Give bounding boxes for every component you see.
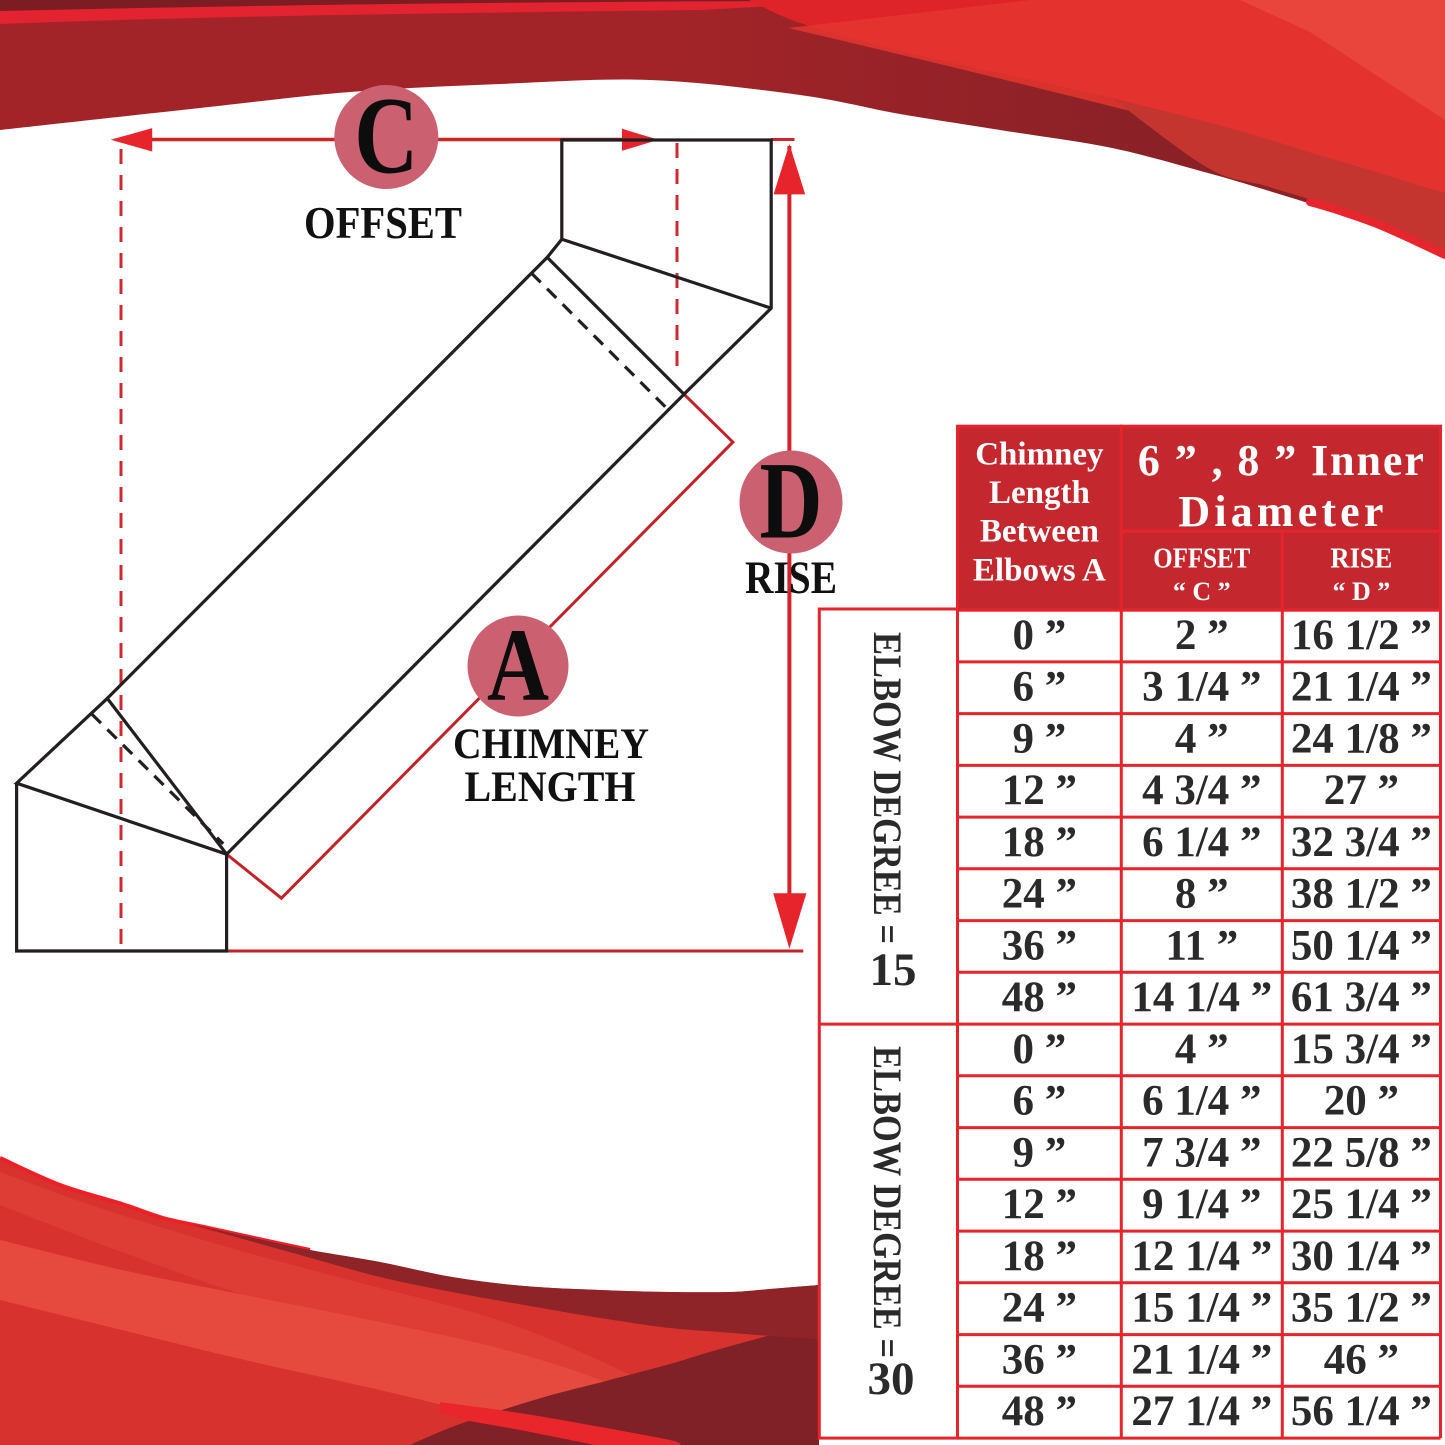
svg-text:20 ”: 20 ”	[1324, 1078, 1399, 1125]
svg-text:“ D ”: “ D ”	[1333, 577, 1391, 606]
svg-text:21 1/4 ”: 21 1/4 ”	[1291, 664, 1432, 711]
svg-text:ELBOW DEGREE =: ELBOW DEGREE =	[865, 1046, 910, 1358]
svg-text:LENGTH: LENGTH	[465, 764, 636, 811]
svg-text:56 1/4 ”: 56 1/4 ”	[1291, 1388, 1432, 1435]
svg-text:48 ”: 48 ”	[1002, 974, 1077, 1021]
svg-text:24 ”: 24 ”	[1002, 1285, 1077, 1332]
svg-text:“ C ”: “ C ”	[1173, 577, 1231, 606]
svg-text:27 ”: 27 ”	[1324, 767, 1399, 814]
svg-text:25 1/4 ”: 25 1/4 ”	[1291, 1181, 1432, 1228]
svg-text:4 3/4 ”: 4 3/4 ”	[1142, 767, 1261, 814]
svg-text:OFFSET: OFFSET	[304, 197, 462, 248]
svg-text:RISE: RISE	[745, 552, 837, 604]
svg-text:RISE: RISE	[1330, 542, 1392, 574]
svg-text:A: A	[487, 608, 549, 723]
svg-text:7 3/4 ”: 7 3/4 ”	[1142, 1130, 1261, 1177]
svg-text:Length: Length	[989, 475, 1090, 511]
svg-text:30: 30	[868, 1353, 915, 1405]
svg-text:12 ”: 12 ”	[1002, 1181, 1077, 1228]
svg-text:14 1/4 ”: 14 1/4 ”	[1131, 974, 1272, 1021]
svg-text:CHIMNEY: CHIMNEY	[453, 721, 649, 768]
svg-text:18 ”: 18 ”	[1002, 819, 1077, 866]
svg-text:15 1/4 ”: 15 1/4 ”	[1131, 1285, 1272, 1332]
svg-text:8 ”: 8 ”	[1175, 871, 1229, 918]
svg-text:15 3/4 ”: 15 3/4 ”	[1291, 1026, 1432, 1073]
svg-text:48 ”: 48 ”	[1002, 1388, 1077, 1435]
svg-text:ELBOW DEGREE =: ELBOW DEGREE =	[865, 632, 910, 944]
svg-text:2 ”: 2 ”	[1175, 612, 1229, 659]
svg-text:6 ” , 8 ” Inner: 6 ” , 8 ” Inner	[1138, 436, 1424, 485]
svg-text:50 1/4 ”: 50 1/4 ”	[1291, 923, 1432, 970]
svg-text:D: D	[760, 440, 823, 562]
svg-text:9 ”: 9 ”	[1013, 1130, 1067, 1177]
svg-text:6 ”: 6 ”	[1013, 1078, 1067, 1125]
svg-text:27 1/4 ”: 27 1/4 ”	[1131, 1388, 1272, 1435]
svg-text:21 1/4 ”: 21 1/4 ”	[1131, 1337, 1272, 1384]
svg-text:Diameter: Diameter	[1178, 487, 1383, 536]
svg-text:12 1/4 ”: 12 1/4 ”	[1131, 1233, 1272, 1280]
svg-text:22 5/8 ”: 22 5/8 ”	[1291, 1130, 1432, 1177]
svg-text:15: 15	[870, 944, 917, 996]
svg-text:12 ”: 12 ”	[1002, 767, 1077, 814]
svg-text:Elbows A: Elbows A	[973, 552, 1106, 588]
svg-text:0 ”: 0 ”	[1013, 612, 1067, 659]
svg-text:4 ”: 4 ”	[1175, 716, 1229, 763]
svg-text:35 1/2 ”: 35 1/2 ”	[1291, 1285, 1432, 1332]
svg-text:24 ”: 24 ”	[1002, 871, 1077, 918]
svg-text:32 3/4 ”: 32 3/4 ”	[1291, 819, 1432, 866]
svg-text:C: C	[354, 75, 418, 197]
svg-text:3 1/4 ”: 3 1/4 ”	[1142, 664, 1261, 711]
svg-text:Chimney: Chimney	[975, 437, 1104, 473]
svg-text:18 ”: 18 ”	[1002, 1233, 1077, 1280]
svg-text:24 1/8 ”: 24 1/8 ”	[1291, 716, 1432, 763]
svg-text:30 1/4 ”: 30 1/4 ”	[1291, 1233, 1432, 1280]
svg-text:6 ”: 6 ”	[1013, 664, 1067, 711]
svg-text:38 1/2 ”: 38 1/2 ”	[1291, 871, 1432, 918]
svg-text:4 ”: 4 ”	[1175, 1026, 1229, 1073]
svg-text:16 1/2 ”: 16 1/2 ”	[1291, 612, 1432, 659]
svg-text:46 ”: 46 ”	[1324, 1337, 1399, 1384]
svg-text:36 ”: 36 ”	[1002, 923, 1077, 970]
svg-text:61 3/4 ”: 61 3/4 ”	[1291, 974, 1432, 1021]
svg-text:11 ”: 11 ”	[1165, 923, 1238, 970]
svg-text:9 1/4 ”: 9 1/4 ”	[1142, 1181, 1261, 1228]
svg-text:6 1/4 ”: 6 1/4 ”	[1142, 1078, 1261, 1125]
svg-text:OFFSET: OFFSET	[1153, 542, 1250, 574]
svg-text:6 1/4 ”: 6 1/4 ”	[1142, 819, 1261, 866]
svg-text:0 ”: 0 ”	[1013, 1026, 1067, 1073]
svg-text:9 ”: 9 ”	[1013, 716, 1067, 763]
svg-text:36 ”: 36 ”	[1002, 1337, 1077, 1384]
svg-text:Between: Between	[980, 514, 1099, 550]
